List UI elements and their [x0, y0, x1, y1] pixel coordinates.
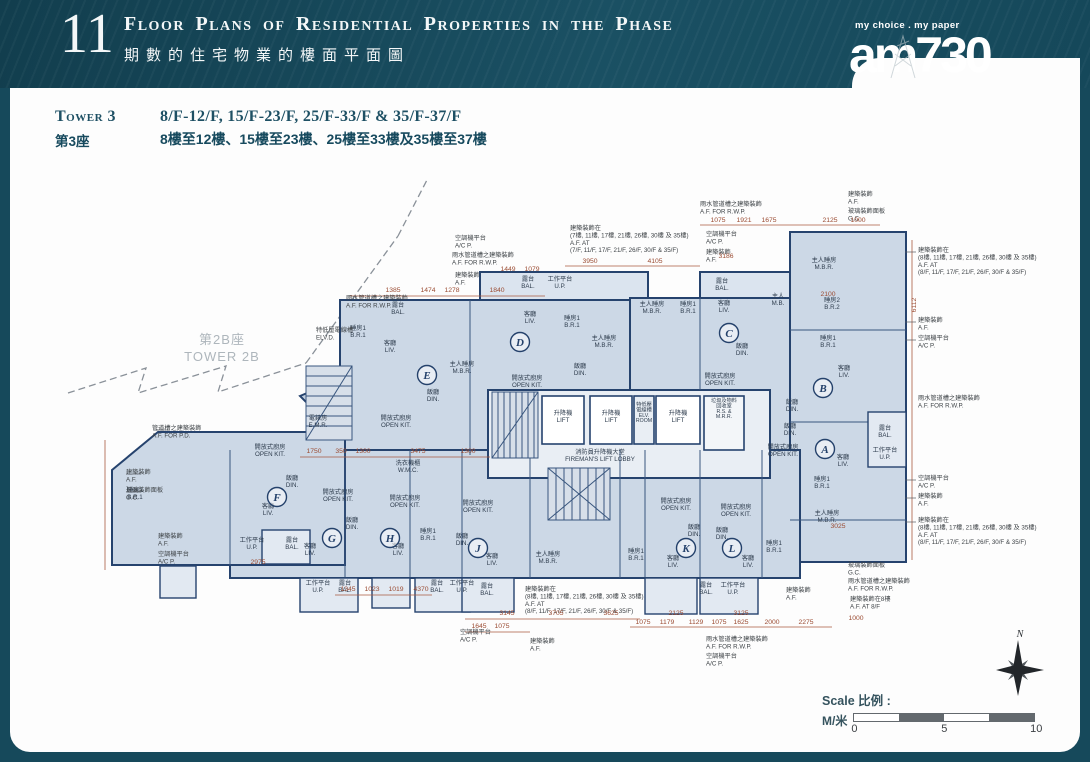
core-label: 升降機	[554, 409, 573, 417]
room-label: 睡房1	[680, 300, 696, 308]
annotation-note: A.F. AT	[918, 262, 938, 269]
room-label: 露台	[716, 277, 728, 285]
dimension-value: 1474	[420, 287, 435, 294]
room-label: M.B.R.	[643, 308, 662, 315]
annotation-note: A.F.	[918, 324, 929, 331]
unit-H-letter: H	[385, 533, 395, 545]
room-label: BAL.	[480, 590, 494, 597]
room-label: LIV.	[487, 560, 498, 567]
room-label: BAL.	[715, 285, 729, 292]
room-label: LIV.	[305, 550, 316, 557]
annotation-note: A/C P.	[158, 558, 175, 565]
room-label: W.M.C.	[398, 467, 419, 474]
room-label: B.R.1	[564, 322, 580, 329]
core-label: 電錶房	[309, 414, 328, 422]
annotation-note: 建築裝飾	[455, 271, 480, 279]
core-label: LIFT	[605, 417, 618, 424]
room-label: OPEN KIT.	[390, 502, 420, 509]
dimension-value: 1300	[355, 448, 370, 455]
dimension-value: 4105	[647, 258, 662, 265]
room-label: 客廳	[742, 554, 754, 562]
core-label: LIFT	[557, 417, 570, 424]
unit-E-letter: E	[422, 370, 430, 382]
dimension-value: 1278	[444, 287, 459, 294]
core-label: 升降機	[602, 409, 621, 417]
annotation-note: A/C P.	[460, 636, 477, 643]
room-label: 飯廳	[736, 342, 748, 350]
core-label: 消防員升降機大堂	[575, 448, 625, 456]
room-label: 客廳	[837, 453, 849, 461]
room-label: M.B.R.	[539, 558, 558, 565]
compass-north-label: N	[1016, 629, 1025, 640]
dimension-value: 3950	[582, 258, 597, 265]
adjacent-tower-label-zh: 第2B座	[199, 332, 245, 347]
annotation-note: 雨水管道槽之建築裝飾	[706, 635, 768, 643]
room-label: BAL.	[391, 309, 405, 316]
unit-K-letter: K	[681, 543, 690, 555]
room-label: 工作平台	[873, 446, 898, 454]
room-label: 洗衣機櫃	[396, 459, 421, 467]
dimension-value: 1079	[524, 266, 539, 273]
annotation-note: A/C P.	[706, 660, 723, 667]
room-label: 開放式廚房	[323, 488, 354, 496]
room-label: 主人睡房	[450, 360, 475, 368]
annotation-note: 建築裝飾在	[918, 516, 949, 524]
annotation-note: A/C P.	[918, 342, 935, 349]
room-label: 飯廳	[456, 532, 468, 540]
adjacent-tower-label-en: TOWER 2B	[184, 349, 260, 364]
room-label: BAL.	[521, 283, 535, 290]
room-label: 工作平台	[240, 536, 265, 544]
annotation-note: A.F. FOR R.W.P.	[848, 585, 894, 592]
room-label: 工作平台	[721, 581, 746, 589]
room-label: M.B.R.	[595, 342, 614, 349]
room-label: OPEN KIT.	[512, 382, 542, 389]
room-label: BAL.	[430, 587, 444, 594]
room-label: U.P.	[554, 283, 566, 290]
room-label: LIV.	[263, 510, 274, 517]
room-label: U.P.	[312, 587, 324, 594]
annotation-note: A.F. FOR P.D.	[152, 432, 191, 439]
room-label: 主人睡房	[815, 509, 840, 517]
room-label: U.P.	[879, 454, 891, 461]
annotation-note: A/C P.	[706, 238, 723, 245]
core-label: E.M.R.	[309, 422, 328, 429]
room-label: 客廳	[838, 364, 850, 372]
scale-segment	[944, 714, 989, 721]
scale-segment	[854, 714, 899, 721]
annotation-note: 空調機平台	[455, 234, 486, 242]
room-label: B.R.1	[680, 308, 696, 315]
unit-D-letter: D	[515, 337, 524, 349]
annotation-note: A.F. AT	[525, 601, 545, 608]
room-label: OPEN KIT.	[768, 451, 798, 458]
room-label: 客廳	[486, 552, 498, 560]
unit-J-letter: J	[474, 543, 481, 555]
room-label: 開放式廚房	[463, 499, 494, 507]
dimension-value: 1750	[306, 448, 321, 455]
dimension-value: 1840	[489, 287, 504, 294]
room-label: 開放式廚房	[705, 372, 736, 380]
annotation-note: 玻璃裝飾面板	[848, 561, 885, 569]
annotation-note: 建築裝飾	[786, 586, 811, 594]
room-label: LIV.	[838, 461, 849, 468]
room-label: BAL.	[285, 544, 299, 551]
annotation-note: A.F.	[455, 279, 466, 286]
room-label: 飯廳	[286, 474, 298, 482]
dimension-value: 3186	[718, 253, 733, 260]
annotation-note: A.F. AT	[570, 240, 590, 247]
core-label: M.R.R.	[716, 414, 732, 420]
annotation-note: (8/F, 11/F, 17/F, 21/F, 26/F, 30/F & 35/…	[918, 269, 1026, 276]
dimension-value: 1075	[494, 623, 509, 630]
annotation-note: A.F. FOR R.W.P.	[918, 402, 964, 409]
annotation-note: 建築裝飾在	[525, 585, 556, 593]
room-label: 主人睡房	[536, 550, 561, 558]
room-label: 飯廳	[688, 523, 700, 531]
annotation-note: A.F. AT 8/F	[850, 603, 880, 610]
annotation-note: A.F.	[786, 594, 797, 601]
room-label: 主人睡房	[592, 334, 617, 342]
annotation-note: A.F.	[126, 476, 137, 483]
room-label: B.R.2	[824, 304, 840, 311]
dimension-value: 3625	[603, 610, 618, 617]
dimension-value: 1645	[471, 623, 486, 630]
dimension-value: 6112	[911, 297, 918, 312]
room-label: DIN.	[688, 531, 701, 538]
annotation-note: 玻璃裝飾面板	[848, 207, 885, 215]
unit-A-letter: A	[820, 444, 828, 456]
room-label: LIV.	[525, 318, 536, 325]
room-label: 客廳	[304, 542, 316, 550]
annotation-note: 建築裝飾	[126, 468, 151, 476]
room-label: LIV.	[743, 562, 754, 569]
page: { "header": { "section_number": "11", "t…	[0, 0, 1090, 762]
annotation-note: (7/F, 11/F, 17/F, 21/F, 26/F, 30/F & 35/…	[570, 247, 678, 254]
dimension-value: 1345	[340, 586, 355, 593]
scale-bar: Scale 比例 : M/米 0 5 10	[822, 690, 1052, 729]
room-label: DIN.	[346, 524, 359, 531]
room-label: LIV.	[393, 550, 404, 557]
room-label: 客廳	[524, 310, 536, 318]
room-label: 露台	[431, 579, 443, 587]
compass-icon: N	[996, 629, 1044, 696]
dimension-value: 2125	[822, 217, 837, 224]
room-label: 主人睡房	[812, 256, 837, 264]
room-label: 睡房1	[420, 527, 436, 535]
dimension-value: 3475	[410, 448, 425, 455]
unit-B-letter: B	[818, 383, 826, 395]
room-label: 飯廳	[574, 362, 586, 370]
room-label: B.R.1	[420, 535, 436, 542]
annotation-note: 建築裝飾在	[918, 246, 949, 254]
annotation-note: 雨水管道槽之建築裝飾	[346, 294, 408, 302]
room-label: 露台	[392, 301, 404, 309]
dimension-value: 1019	[388, 586, 403, 593]
annotation-note: A/C P.	[455, 242, 472, 249]
room-label: B.R.1	[628, 555, 644, 562]
room-label: U.P.	[727, 589, 739, 596]
room-label: M.B.R.	[815, 264, 834, 271]
room-label: BAL.	[878, 432, 892, 439]
dimension-value: 3145	[499, 610, 514, 617]
dimension-value: 3705	[548, 610, 563, 617]
dimension-value: 3125	[733, 610, 748, 617]
unit-C-letter: C	[725, 328, 733, 340]
room-label: 飯廳	[346, 516, 358, 524]
dimension-value: 1000	[850, 217, 865, 224]
annotation-note: A.F.	[706, 256, 717, 263]
room-label: 開放式廚房	[661, 497, 692, 505]
room-label: OPEN KIT.	[705, 380, 735, 387]
room-label: BAL.	[699, 589, 713, 596]
annotation-note: 管道槽之建築裝飾	[152, 424, 202, 432]
scale-unit-label: M/米	[822, 712, 847, 729]
room-label: 主人	[772, 292, 784, 300]
dimension-value: 4370	[413, 586, 428, 593]
room-label: LIV.	[385, 347, 396, 354]
annotation-note: A.F.	[530, 645, 541, 652]
dimension-value: 1000	[848, 615, 863, 622]
annotation-note: 建築裝飾	[918, 316, 943, 324]
dimension-value: 1023	[364, 586, 379, 593]
dimension-value: 1300	[460, 448, 475, 455]
room-label: 飯廳	[716, 526, 728, 534]
room-label: 開放式廚房	[768, 443, 799, 451]
scale-label: Scale 比例 :	[822, 690, 1052, 709]
room-label: 飯廳	[786, 398, 798, 406]
annotation-note: 建築裝飾在8樓	[850, 595, 891, 603]
room-label: 開放式廚房	[390, 494, 421, 502]
room-label: 客廳	[384, 339, 396, 347]
annotation-note: A.F. FOR R.W.P.	[452, 259, 498, 266]
room-label: 睡房1	[628, 547, 644, 555]
annotation-note: A.F.	[848, 198, 859, 205]
annotation-note: G.C.	[126, 494, 139, 501]
room-label: M.B.	[772, 300, 785, 307]
floor-plan-drawing: N 露台BAL.睡房1B.R.1客廳LIV.主人睡房M.B.R.飯廳DIN.開放…	[0, 0, 1090, 762]
annotation-note: (7樓, 11樓, 17樓, 21樓, 26樓, 30樓 及 35樓)	[570, 231, 689, 239]
dimension-value: 350	[335, 448, 347, 455]
annotation-note: (8樓, 11樓, 17樓, 21樓, 26樓, 30樓 及 35樓)	[918, 523, 1037, 531]
core-label: ROOM	[636, 418, 652, 424]
room-label: U.P.	[246, 544, 258, 551]
room-label: DIN.	[574, 370, 587, 377]
annotation-note: A/C P.	[918, 482, 935, 489]
dimension-value: 2000	[764, 619, 779, 626]
annotation-note: 空調機平台	[918, 474, 949, 482]
dimension-value: 2125	[668, 610, 683, 617]
dimension-value: 1179	[660, 619, 675, 626]
room-label: 睡房1	[564, 314, 580, 322]
dimension-value: 1675	[761, 217, 776, 224]
room-label: 飯廳	[427, 388, 439, 396]
room-label: OPEN KIT.	[323, 496, 353, 503]
scale-tick-10: 10	[1030, 723, 1042, 735]
room-label: DIN.	[736, 350, 749, 357]
annotation-note: ELV.D.	[316, 334, 335, 341]
unit-F-letter: F	[272, 492, 281, 504]
room-label: DIN.	[786, 406, 799, 413]
room-label: OPEN KIT.	[661, 505, 691, 512]
scale-tick-5: 5	[941, 723, 947, 735]
annotation-note: A.F. AT	[918, 532, 938, 539]
room-label: 開放式廚房	[381, 414, 412, 422]
annotation-note: (8樓, 11樓, 17樓, 21樓, 26樓, 30樓 及 35樓)	[525, 592, 644, 600]
annotation-note: 雨水管道槽之建築裝飾	[700, 200, 762, 208]
annotation-note: 特低壓電線槽	[316, 326, 353, 334]
dimension-value: 1921	[736, 217, 751, 224]
annotation-note: 建築裝飾	[918, 492, 943, 500]
room-label: B.R.1	[814, 483, 830, 490]
room-label: 飯廳	[784, 422, 796, 430]
annotation-note: (8/F, 11/F, 17/F, 21/F, 26/F, 30/F & 35/…	[918, 539, 1026, 546]
room-label: DIN.	[784, 430, 797, 437]
core-label: 升降機	[669, 409, 688, 417]
annotation-note: 空調機平台	[706, 230, 737, 238]
annotation-note: 雨水管道槽之建築裝飾	[918, 394, 980, 402]
unit-G-letter: G	[328, 533, 336, 545]
dimension-value: 2275	[798, 619, 813, 626]
room-label: OPEN KIT.	[381, 422, 411, 429]
room-label: 開放式廚房	[255, 443, 286, 451]
annotation-note: 建築裝飾	[530, 637, 555, 645]
annotation-note: 空調機平台	[158, 550, 189, 558]
dimension-value: 2100	[820, 291, 835, 298]
annotation-note: (8樓, 11樓, 17樓, 21樓, 26樓, 30樓 及 35樓)	[918, 253, 1037, 261]
annotation-note: A.F.	[158, 540, 169, 547]
dimension-value: 3025	[830, 523, 845, 530]
unit-L-letter: L	[728, 543, 736, 555]
scale-segment	[989, 714, 1034, 721]
room-label: LIV.	[839, 372, 850, 379]
scale-track: 0 5 10	[853, 713, 1035, 722]
annotation-note: G.C.	[848, 569, 861, 576]
annotation-note: 建築裝飾	[158, 532, 183, 540]
room-label: 露台	[286, 536, 298, 544]
dimension-value: 1385	[385, 287, 400, 294]
room-label: DIN.	[456, 540, 469, 547]
room-label: M.B.R.	[453, 368, 472, 375]
room-label: 工作平台	[306, 579, 331, 587]
core-label: FIREMAN'S LIFT LOBBY	[565, 456, 635, 463]
annotation-note: 雨水管道槽之建築裝飾	[452, 251, 514, 259]
room-label: B.R.1	[820, 342, 836, 349]
dimension-value: 1075	[710, 217, 725, 224]
room-label: 睡房1	[814, 475, 830, 483]
room-label: 工作平台	[450, 579, 475, 587]
room-label: OPEN KIT.	[721, 511, 751, 518]
annotation-note: A.F. FOR R.W.P.	[706, 643, 752, 650]
room-label: LIV.	[668, 562, 679, 569]
room-label: 客廳	[718, 299, 730, 307]
room-label: 睡房1	[766, 539, 782, 547]
room-label: DIN.	[427, 396, 440, 403]
annotation-note: 空調機平台	[706, 652, 737, 660]
annotation-note: 建築裝飾	[848, 190, 873, 198]
room-label: 露台	[879, 424, 891, 432]
room-label: OPEN KIT.	[255, 451, 285, 458]
dimension-value: 1129	[689, 619, 704, 626]
room-label: DIN.	[286, 482, 299, 489]
room-label: 睡房1	[820, 334, 836, 342]
dimension-value: 1449	[500, 266, 515, 273]
room-label: LIV.	[719, 307, 730, 314]
annotation-note: 空調機平台	[918, 334, 949, 342]
scale-segment	[899, 714, 944, 721]
annotation-note: A.F. FOR R.W.P.	[346, 302, 392, 309]
room-label: U.P.	[456, 587, 468, 594]
room-label: 露台	[522, 275, 534, 283]
annotation-note: A.F.	[918, 500, 929, 507]
dimension-value: 2975	[250, 559, 265, 566]
scale-tick-0: 0	[851, 723, 857, 735]
room-label: 工作平台	[548, 275, 573, 283]
room-label: B.R.1	[766, 547, 782, 554]
room-label: 主人睡房	[640, 300, 665, 308]
annotation-note: 雨水管道槽之建築裝飾	[848, 577, 910, 585]
room-label: 開放式廚房	[721, 503, 752, 511]
dimension-value: 1075	[635, 619, 650, 626]
annotation-note: 玻璃裝飾面板	[126, 486, 163, 494]
dimension-value: 1625	[733, 619, 748, 626]
room-label: 露台	[481, 582, 493, 590]
room-label: 露台	[700, 581, 712, 589]
core-label: LIFT	[672, 417, 685, 424]
room-label: 客廳	[667, 554, 679, 562]
annotation-note: 建築裝飾在	[570, 224, 601, 232]
room-label: OPEN KIT.	[463, 507, 493, 514]
dimension-value: 1075	[711, 619, 726, 626]
annotation-note: A.F. FOR R.W.P.	[700, 208, 746, 215]
room-label: 開放式廚房	[512, 374, 543, 382]
